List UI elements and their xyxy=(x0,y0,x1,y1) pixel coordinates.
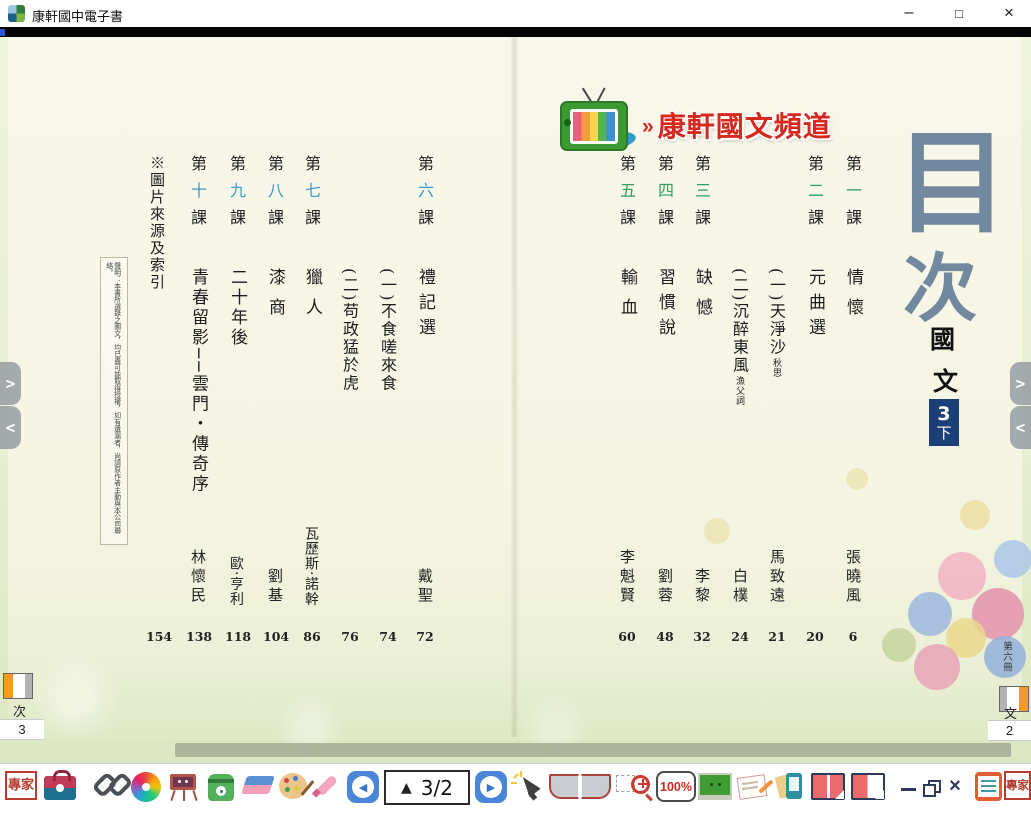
trash-bin-button[interactable] xyxy=(205,771,237,803)
zoom-select-button[interactable] xyxy=(616,771,654,803)
trash-robot-icon xyxy=(208,774,234,801)
toc-entry-lesson-6: 第六課 禮記選 戴聖 72 xyxy=(413,155,437,644)
volume-suffix: 下 xyxy=(936,426,951,441)
clipboard-icon xyxy=(975,772,1002,801)
highlighter-button[interactable] xyxy=(311,771,343,799)
app-logo-icon xyxy=(8,5,25,22)
eraser-button[interactable] xyxy=(242,771,274,799)
toc-entry-image-index: ※圖片來源及索引 154 xyxy=(146,155,170,644)
toolbar-restore-button[interactable] xyxy=(921,779,943,797)
lesson-page-number: 6 xyxy=(841,629,865,644)
flower-pinwheel-icon xyxy=(131,772,161,802)
toc-entry-lesson-3: 第三課 缺憾 李黎 32 xyxy=(690,155,714,644)
magnifier-icon xyxy=(616,771,654,803)
lesson-author: 劉基 xyxy=(267,568,282,606)
lesson-page-number: 86 xyxy=(300,629,324,644)
window-maximize-button[interactable]: □ xyxy=(942,0,976,26)
toc-entry-lesson-8: 第八課 漆商 劉基 104 xyxy=(263,155,287,644)
horizontal-scrollbar[interactable] xyxy=(175,743,1011,757)
toc-entry-lesson-2-sub-2: (二)沉醉東風漁父詞 白樸 24 xyxy=(728,155,752,644)
toc-entry-lesson-4: 第四課 習慣說 劉蓉 48 xyxy=(653,155,677,644)
book-page-left xyxy=(8,37,514,740)
lesson-page-number: 76 xyxy=(338,629,362,644)
two-page-icon xyxy=(811,773,845,800)
lesson-author: 歐·亨利 xyxy=(229,556,243,606)
two-page-view-button[interactable] xyxy=(809,771,847,802)
restore-window-icon xyxy=(923,780,941,796)
next-page-button[interactable]: ▶ xyxy=(475,771,507,803)
banner-label: 康軒國文頻道 xyxy=(658,105,832,145)
color-tools-button[interactable] xyxy=(130,771,162,803)
right-edge-forward-button[interactable]: > xyxy=(1010,362,1031,405)
lesson-page-number: 74 xyxy=(376,629,400,644)
page-indicator-value: 3/2 xyxy=(421,776,453,800)
pink-pen-icon xyxy=(312,772,342,798)
banner-chevron: » xyxy=(642,115,654,139)
right-edge-volume-label: 第六冊 xyxy=(999,641,1013,673)
subject-char-2: 文 xyxy=(933,369,958,394)
toolbox-icon xyxy=(44,773,76,800)
toc-entry-lesson-9: 第九課 二十年後 歐·亨利 118 xyxy=(225,155,249,644)
toolbox-button[interactable] xyxy=(42,771,78,802)
toc-entry-lesson-6-sub-2: (二)苟政猛於虎 76 xyxy=(338,155,362,644)
left-corner-tab-label: 次 xyxy=(13,701,26,720)
toc-headline-char-1: 目 xyxy=(896,128,1008,240)
subject-char-1: 國 xyxy=(930,327,955,352)
page-up-icon[interactable]: ▲ xyxy=(401,780,412,796)
green-board-icon xyxy=(698,773,732,800)
left-edge-forward-button[interactable]: > xyxy=(0,362,21,405)
right-corner-page-number[interactable]: 2 xyxy=(988,720,1031,741)
volume-number: 3 xyxy=(937,405,950,424)
lesson-author: 林懷民 xyxy=(190,549,205,606)
toc-entry-lesson-7: 第七課 獵人 瓦歷斯·諾幹 86 xyxy=(300,155,324,644)
toc-headline-char-2: 次 xyxy=(903,252,977,326)
lesson-author: 張曉風 xyxy=(845,549,860,606)
book-spine xyxy=(510,37,519,737)
note-paper-icon xyxy=(736,772,770,802)
window-title-bar: 康軒國中電子書 – □ × xyxy=(0,0,1031,27)
palette-button[interactable] xyxy=(277,771,309,801)
lesson-author: 馬致遠 xyxy=(769,549,784,606)
toc-entry-lesson-2-sub-1: (一)天淨沙秋思 馬致遠 21 xyxy=(765,155,789,644)
lesson-author: 戴聖 xyxy=(417,568,432,606)
blackboard-button[interactable] xyxy=(696,771,734,802)
top-divider-strip xyxy=(0,27,1031,37)
toc-entry-lesson-10: 第十課 青春留影──雲門・傳奇序 林懷民 138 xyxy=(186,155,210,644)
left-corner-page-number[interactable]: 3 xyxy=(0,719,44,740)
channel-banner[interactable]: » 康軒國文頻道 xyxy=(560,88,832,152)
lesson-page-number: 138 xyxy=(186,629,210,644)
lesson-page-number: 20 xyxy=(803,629,827,644)
open-book-icon xyxy=(548,772,614,802)
lesson-page-number: 32 xyxy=(690,629,714,644)
single-page-view-button[interactable] xyxy=(849,771,887,802)
lesson-page-number: 21 xyxy=(765,629,789,644)
lesson-page-number: 60 xyxy=(615,629,639,644)
window-close-button[interactable]: × xyxy=(992,0,1026,26)
lesson-author: 李黎 xyxy=(694,568,709,606)
phone-icon xyxy=(772,772,808,803)
next-page-icon: ▶ xyxy=(480,776,502,798)
lesson-page-number: 154 xyxy=(146,629,170,644)
toc-entry-lesson-6-sub-1: (一)不食嗟來食 74 xyxy=(376,155,400,644)
notes-button[interactable] xyxy=(735,771,771,802)
lesson-author: 劉蓉 xyxy=(657,568,672,606)
eraser-icon xyxy=(241,776,275,794)
expert-mode-button-left[interactable]: 專家 xyxy=(5,771,37,800)
catalog-button[interactable] xyxy=(972,771,1004,802)
left-edge-back-button[interactable]: < xyxy=(0,406,21,449)
single-page-icon xyxy=(851,773,885,800)
palette-icon xyxy=(279,773,307,799)
lesson-author: 李魁賢 xyxy=(619,549,634,606)
mobile-device-button[interactable] xyxy=(771,771,809,803)
copyright-note: 聲明：本書所選錄之圖文，均已盡可能取得授權，如有遺漏者，尚請原作者主動與本公司聯… xyxy=(100,257,128,545)
previous-page-icon: ◀ xyxy=(352,776,374,798)
page-spread-button[interactable] xyxy=(547,771,615,803)
window-minimize-button[interactable]: – xyxy=(892,0,926,26)
toolbar-close-button[interactable]: × xyxy=(944,773,966,799)
lesson-page-number: 72 xyxy=(413,629,437,644)
page-indicator-box[interactable]: ▲ 3/2 xyxy=(384,770,470,805)
toc-entry-lesson-5: 第五課 輸血 李魁賢 60 xyxy=(615,155,639,644)
toolbar-minimize-button[interactable] xyxy=(901,788,916,791)
link-button[interactable] xyxy=(94,771,130,799)
pointer-tool-button[interactable] xyxy=(513,771,545,803)
lesson-page-number: 104 xyxy=(263,629,287,644)
window-title: 康軒國中電子書 xyxy=(32,6,123,25)
easel-icon xyxy=(167,772,201,802)
toc-entry-lesson-1: 第一課 情懷 張曉風 6 xyxy=(841,155,865,644)
lesson-author: 瓦歷斯·諾幹 xyxy=(304,526,318,606)
right-edge-back-button[interactable]: < xyxy=(1010,406,1031,449)
lesson-author: 白樸 xyxy=(732,568,747,606)
lesson-page-number: 118 xyxy=(225,629,249,644)
strip-accent xyxy=(0,29,5,36)
zoom-level-button[interactable]: 100% xyxy=(656,771,696,802)
expert-mode-button-right[interactable]: 專家 xyxy=(1004,771,1031,800)
lesson-page-number: 24 xyxy=(728,629,752,644)
left-corner-page-icon[interactable] xyxy=(3,673,33,699)
cursor-icon xyxy=(513,771,545,803)
tv-icon xyxy=(560,88,640,152)
whiteboard-easel-button[interactable] xyxy=(166,771,202,803)
lesson-page-number: 48 xyxy=(653,629,677,644)
toc-entry-lesson-2: 第二課 元曲選 20 xyxy=(803,155,827,644)
volume-badge: 3 下 xyxy=(929,399,959,446)
previous-page-button[interactable]: ◀ xyxy=(347,771,379,803)
